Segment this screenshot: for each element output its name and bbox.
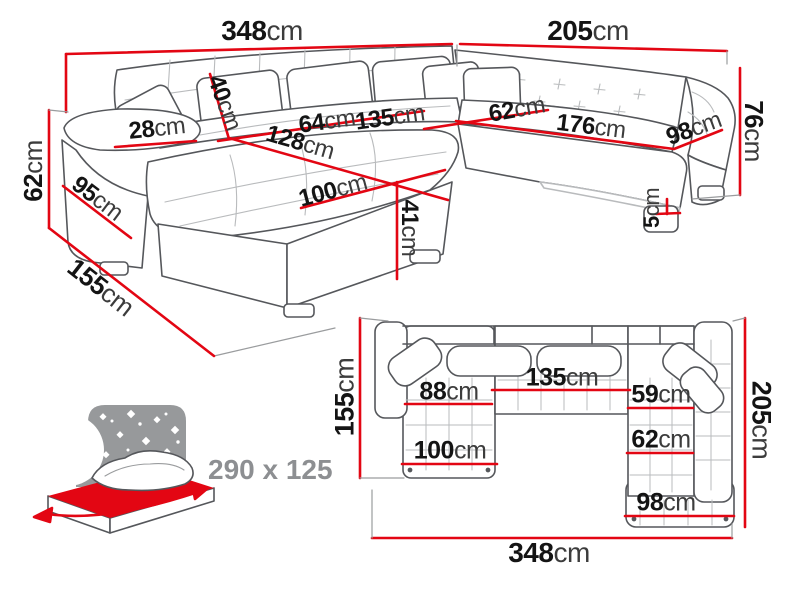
dim-plan-total-width: 348cm (508, 539, 590, 567)
dim-plan-side-depth: 155cm (332, 358, 359, 437)
dim-persp-total-width: 348cm (221, 17, 303, 45)
dim-persp-leg-height: 5cm (641, 188, 663, 228)
dim-persp-seat-height: 41cm (397, 200, 421, 257)
sleep-function-dimensions: 290 x 125 (208, 454, 333, 486)
dim-plan-left-seat-width: 88cm (419, 380, 478, 405)
dim-plan-left-chaise-width: 100cm (414, 439, 487, 464)
sleep-function-icon (32, 405, 214, 533)
dim-plan-total-depth: 205cm (748, 381, 775, 460)
dim-persp-right-width: 205cm (547, 17, 629, 45)
dim-plan-mid-seat-width: 135cm (526, 366, 599, 391)
dim-plan-right-seat-width: 59cm (631, 383, 690, 408)
dim-persp-back-height: 76cm (741, 100, 767, 162)
dim-plan-right-seat-depth: 62cm (631, 428, 690, 453)
dim-persp-arm-height: 62cm (20, 140, 46, 202)
dim-persp-arm-top-width: 28cm (128, 114, 187, 144)
dim-plan-right-chaise-width: 98cm (636, 491, 695, 516)
furniture-dimensions-diagram: 348cm 205cm 76cm 62cm 40cm 28cm 64cm 135… (0, 0, 800, 600)
